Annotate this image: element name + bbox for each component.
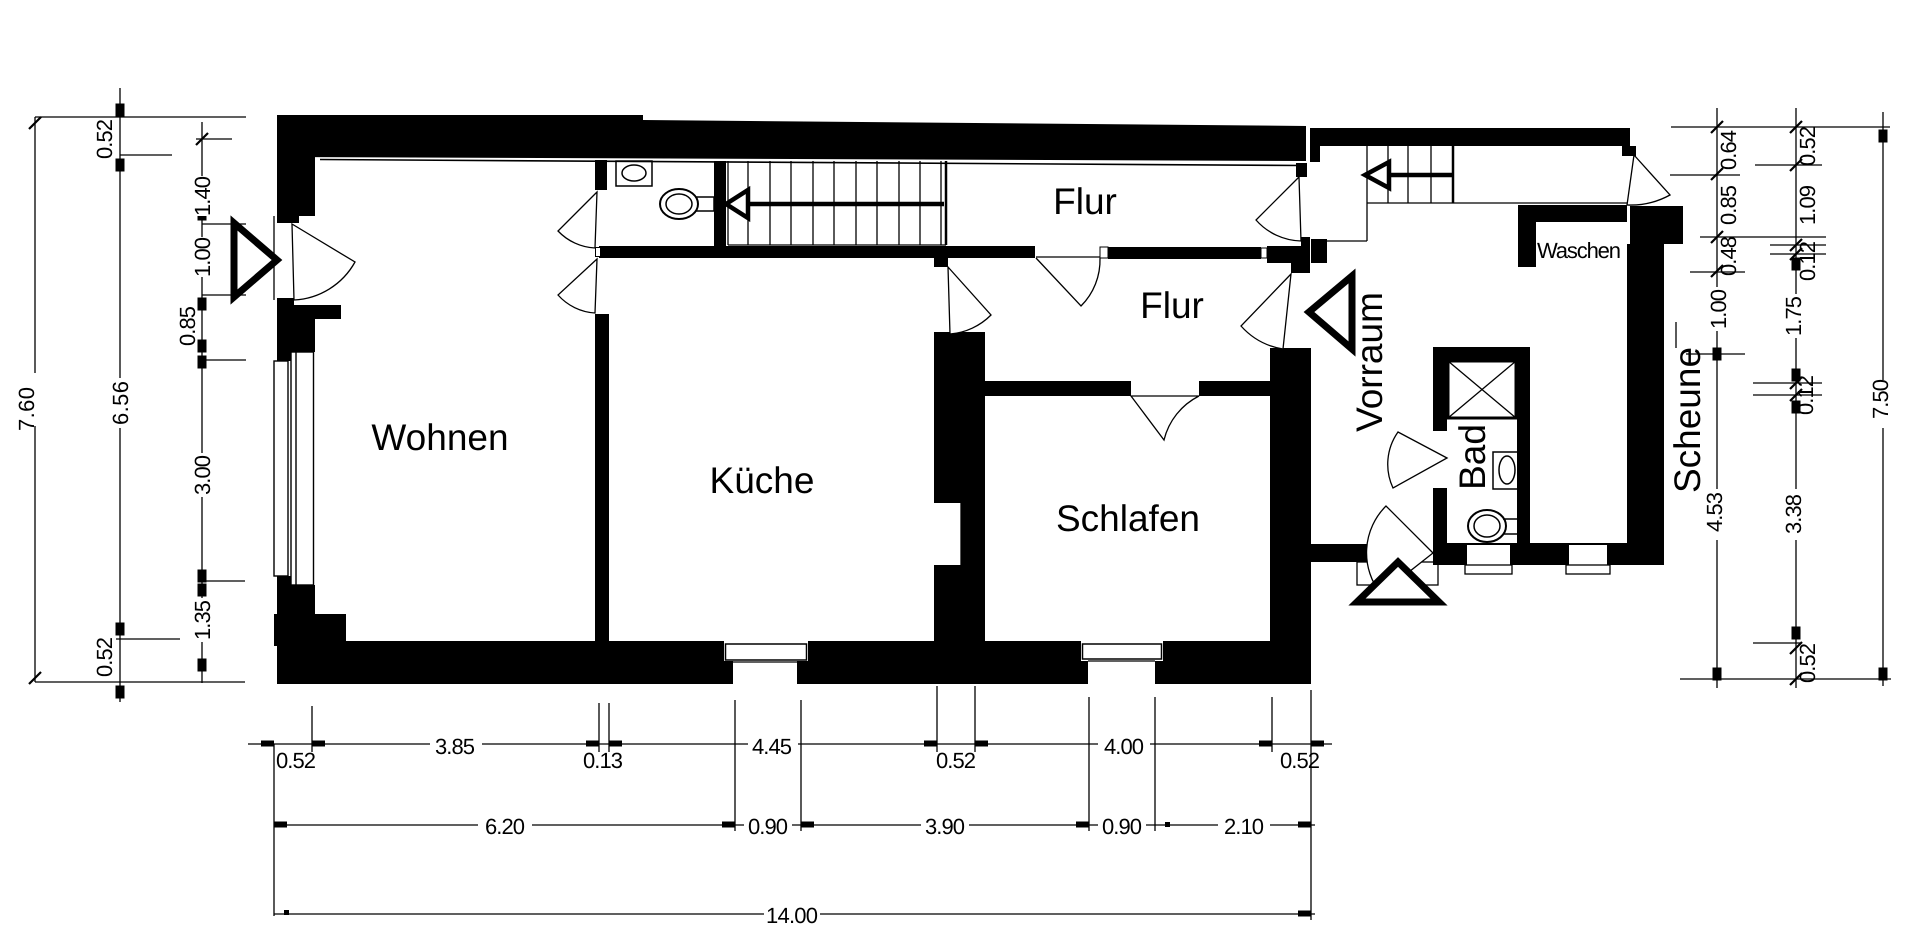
svg-text:1.00: 1.00 — [1706, 289, 1731, 329]
svg-text:3.90: 3.90 — [925, 814, 965, 839]
svg-text:6.56: 6.56 — [108, 381, 133, 425]
svg-text:0.90: 0.90 — [1102, 814, 1142, 839]
svg-text:0.52: 0.52 — [276, 748, 316, 773]
svg-text:0.13: 0.13 — [583, 748, 623, 773]
svg-text:6.20: 6.20 — [485, 814, 525, 839]
svg-text:Schlafen: Schlafen — [1056, 498, 1200, 539]
svg-text:2.10: 2.10 — [1224, 814, 1264, 839]
svg-text:0.52: 0.52 — [92, 119, 117, 159]
svg-text:1.75: 1.75 — [1781, 296, 1806, 336]
svg-text:0.85: 0.85 — [175, 306, 200, 346]
svg-text:0.12: 0.12 — [1793, 375, 1818, 415]
svg-text:Flur: Flur — [1140, 285, 1204, 326]
svg-text:Vorraum: Vorraum — [1349, 292, 1390, 432]
svg-text:4.53: 4.53 — [1702, 492, 1727, 532]
svg-text:7.50: 7.50 — [1868, 379, 1893, 419]
svg-text:Bad: Bad — [1452, 424, 1493, 490]
svg-text:0.12: 0.12 — [1795, 241, 1820, 281]
svg-text:0.90: 0.90 — [748, 814, 788, 839]
svg-text:3.85: 3.85 — [435, 734, 475, 759]
svg-text:1.00: 1.00 — [190, 237, 215, 277]
svg-text:0.52: 0.52 — [92, 637, 117, 677]
svg-text:1.09: 1.09 — [1795, 185, 1820, 225]
svg-text:Flur: Flur — [1053, 181, 1117, 222]
svg-text:4.45: 4.45 — [752, 734, 792, 759]
svg-text:3.38: 3.38 — [1781, 494, 1806, 534]
svg-text:0.85: 0.85 — [1716, 185, 1741, 225]
svg-text:Waschen: Waschen — [1537, 238, 1621, 263]
svg-text:0.64: 0.64 — [1716, 130, 1741, 170]
svg-text:0.52: 0.52 — [1795, 126, 1820, 166]
svg-text:0.48: 0.48 — [1716, 236, 1741, 276]
svg-text:1.35: 1.35 — [190, 600, 215, 640]
svg-text:Wohnen: Wohnen — [371, 417, 508, 458]
svg-text:0.52: 0.52 — [1795, 643, 1820, 683]
svg-text:Küche: Küche — [710, 460, 815, 501]
svg-text:Scheune: Scheune — [1667, 347, 1708, 493]
svg-text:0.52: 0.52 — [1280, 748, 1320, 773]
svg-text:3.00: 3.00 — [190, 455, 215, 495]
svg-text:4.00: 4.00 — [1104, 734, 1144, 759]
svg-text:7.60: 7.60 — [14, 387, 39, 431]
svg-text:0.52: 0.52 — [936, 748, 976, 773]
svg-text:1.40: 1.40 — [190, 176, 215, 216]
svg-text:14.00: 14.00 — [766, 903, 818, 928]
